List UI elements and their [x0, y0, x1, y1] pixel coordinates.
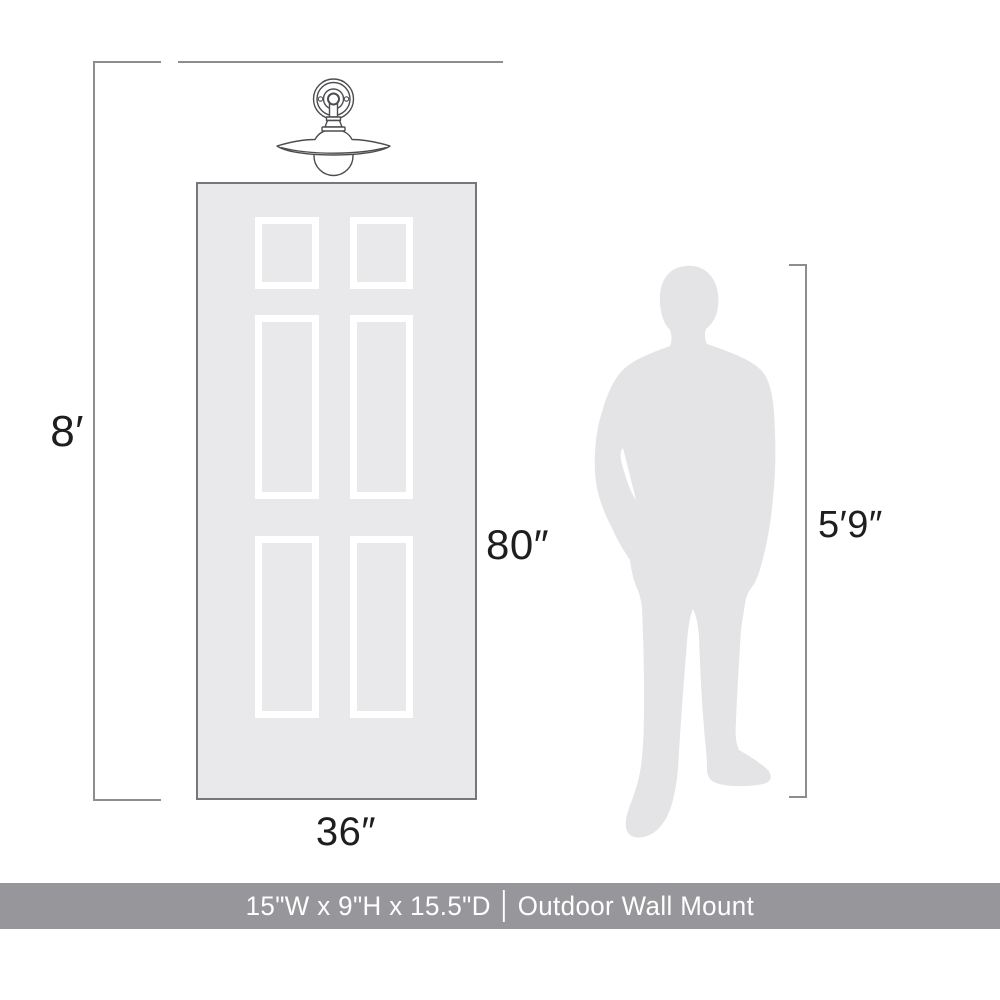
- door-panel-top-left: [255, 217, 319, 289]
- door-panel-top-right: [350, 217, 413, 289]
- banner-separator-bar: [503, 890, 505, 922]
- banner-dimensions: 15"W x 9"H x 15.5"D: [246, 891, 491, 922]
- person-height-dimension-line: [789, 264, 807, 798]
- door-width-label: 36″: [286, 812, 406, 852]
- person-height-label: 5′9″: [818, 506, 883, 544]
- product-dimension-diagram: 8′ 80″ 36″ 5′9″ 15"W x 9"H x 15.5"D: [0, 0, 1000, 1000]
- door-graphic: [196, 182, 477, 800]
- person-silhouette: [590, 264, 790, 838]
- wall-height-dimension-line: [93, 61, 161, 801]
- door-panel-middle-right: [350, 315, 413, 499]
- wall-height-label: 8′: [24, 410, 84, 454]
- door-height-label: 80″: [486, 524, 549, 566]
- door-panel-bottom-left: [255, 536, 319, 718]
- banner-mount-type: Outdoor Wall Mount: [518, 891, 754, 922]
- door-panel-bottom-right: [350, 536, 413, 718]
- wall-sconce-icon: [270, 70, 398, 178]
- ceiling-line: [178, 61, 503, 63]
- door-panel-middle-left: [255, 315, 319, 499]
- spec-banner-text: 15"W x 9"H x 15.5"D Outdoor Wall Mount: [246, 890, 755, 922]
- spec-banner: 15"W x 9"H x 15.5"D Outdoor Wall Mount: [0, 883, 1000, 929]
